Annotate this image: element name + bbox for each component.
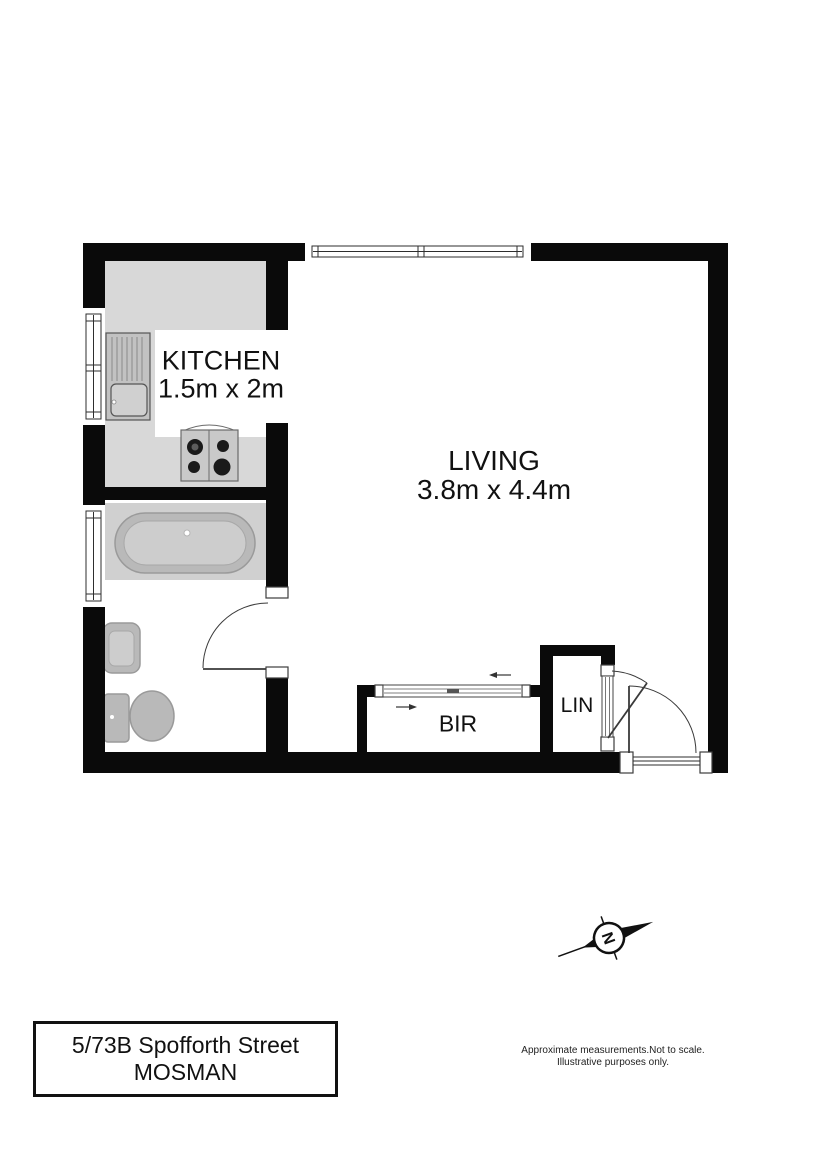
room-dimensions-kitchen: 1.5m x 2m <box>158 374 284 405</box>
kitchen-sink <box>106 333 150 420</box>
stove-cooktop <box>181 425 238 481</box>
bathtub <box>105 503 266 580</box>
closet-label-lin: LIN <box>561 694 594 718</box>
title-block: 5/73B Spofforth Street MOSMAN <box>33 1021 338 1097</box>
window-bathroom <box>86 511 101 601</box>
compass-north-icon: N <box>550 900 661 978</box>
entry-door <box>620 686 712 773</box>
toilet <box>104 691 174 742</box>
floorplan-page: N KITCHEN 1.5m x 2m LIVING 3.8m x 4.4m B… <box>0 0 813 1150</box>
room-label-kitchen: KITCHEN <box>162 346 281 377</box>
disclaimer-line-2: Illustrative purposes only. <box>521 1057 704 1069</box>
room-label-living: LIVING <box>448 445 540 477</box>
closet-label-bir: BIR <box>439 711 477 738</box>
address-line-1: 5/73B Spofforth Street <box>72 1032 299 1059</box>
disclaimer-line-1: Approximate measurements.Not to scale. <box>521 1045 704 1057</box>
window-top <box>312 246 523 257</box>
room-dimensions-living: 3.8m x 4.4m <box>417 474 571 506</box>
bir-sliding-door <box>375 685 530 697</box>
sink-drainer-lines <box>112 337 142 381</box>
lin-door <box>601 665 647 751</box>
address-line-2: MOSMAN <box>134 1059 238 1086</box>
floorplan-drawing: N <box>0 0 813 1150</box>
disclaimer-text: Approximate measurements.Not to scale. I… <box>521 1045 704 1069</box>
bathroom-door <box>203 587 288 678</box>
window-kitchen <box>86 314 101 419</box>
